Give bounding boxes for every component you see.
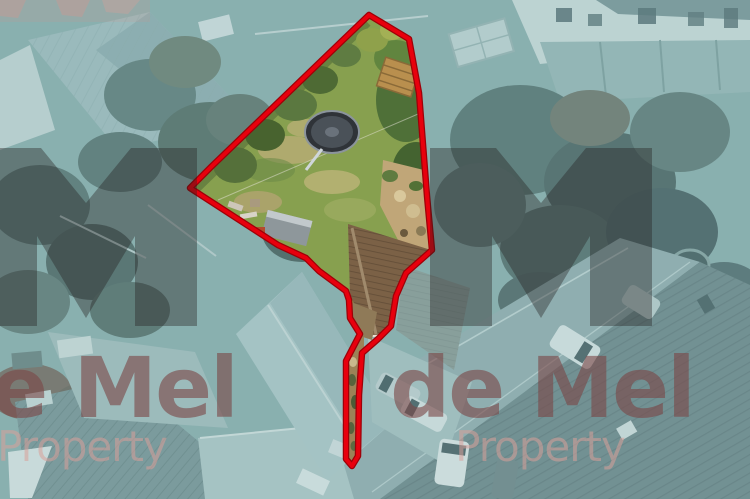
subtitle-text: Property xyxy=(0,422,167,471)
subtitle-text: Property xyxy=(455,422,625,471)
aerial-photo-stage: de Mel Property de Mel Property xyxy=(0,0,750,499)
watermark-top-fragments xyxy=(0,0,150,22)
aerial-photo: de Mel Property de Mel Property xyxy=(0,0,750,499)
